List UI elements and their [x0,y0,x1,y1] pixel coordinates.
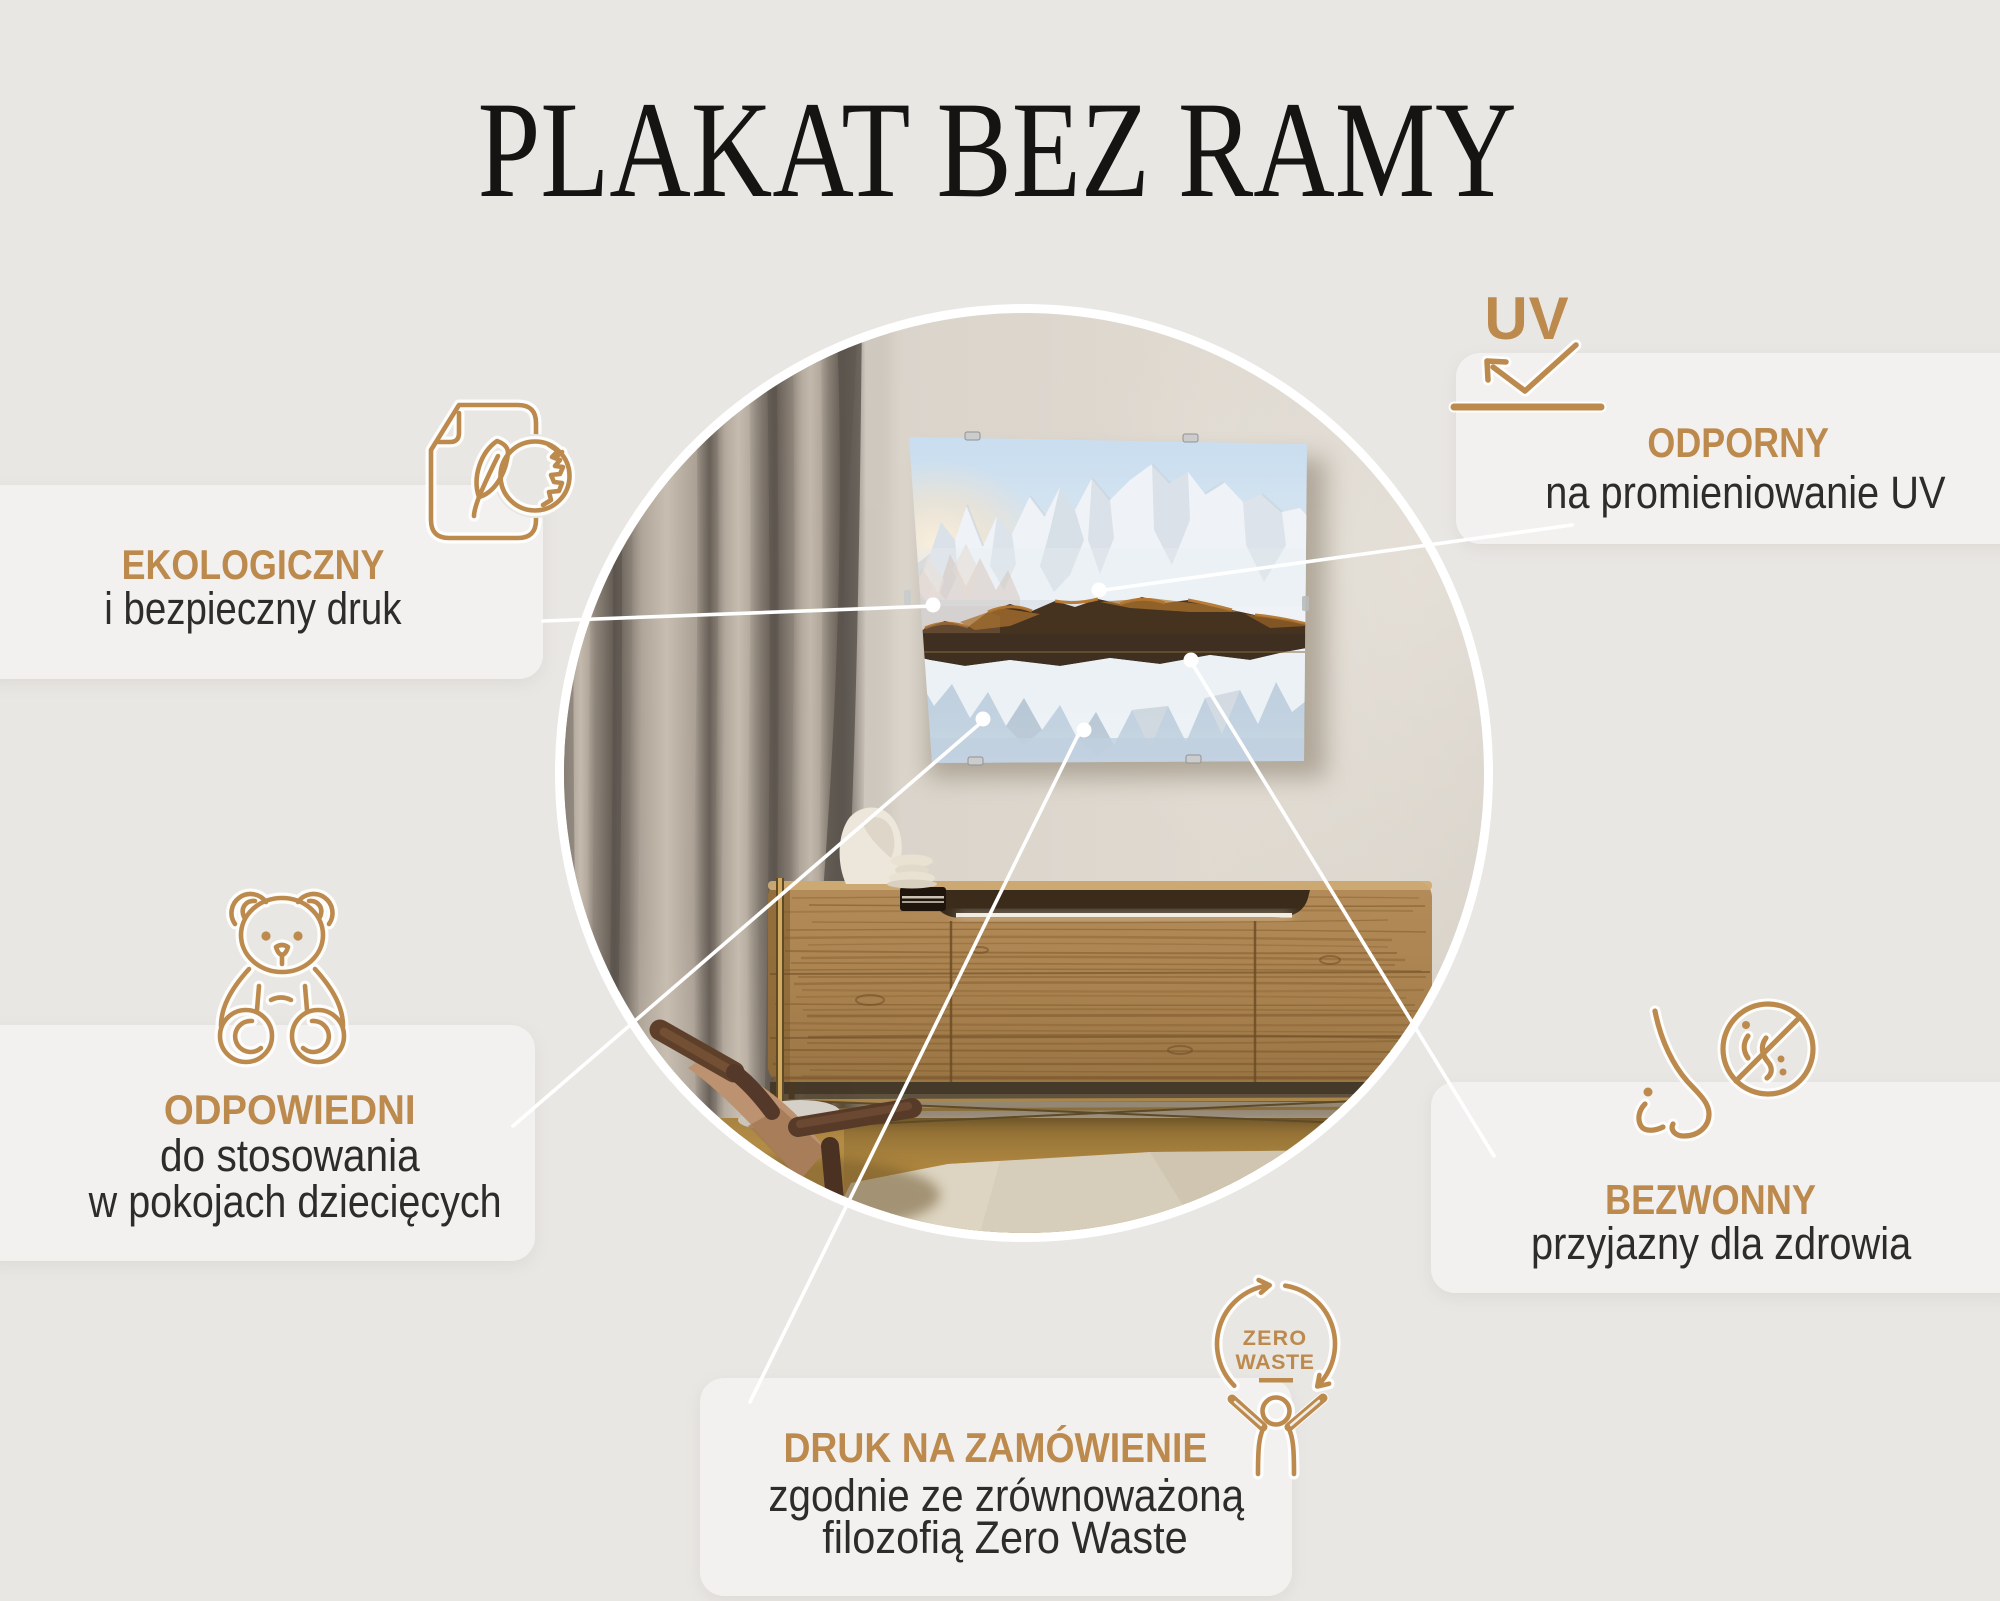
svg-text:WASTE: WASTE [1236,1350,1315,1374]
svg-text:ZERO: ZERO [1243,1326,1308,1350]
svg-text:UV: UV [1484,285,1569,352]
